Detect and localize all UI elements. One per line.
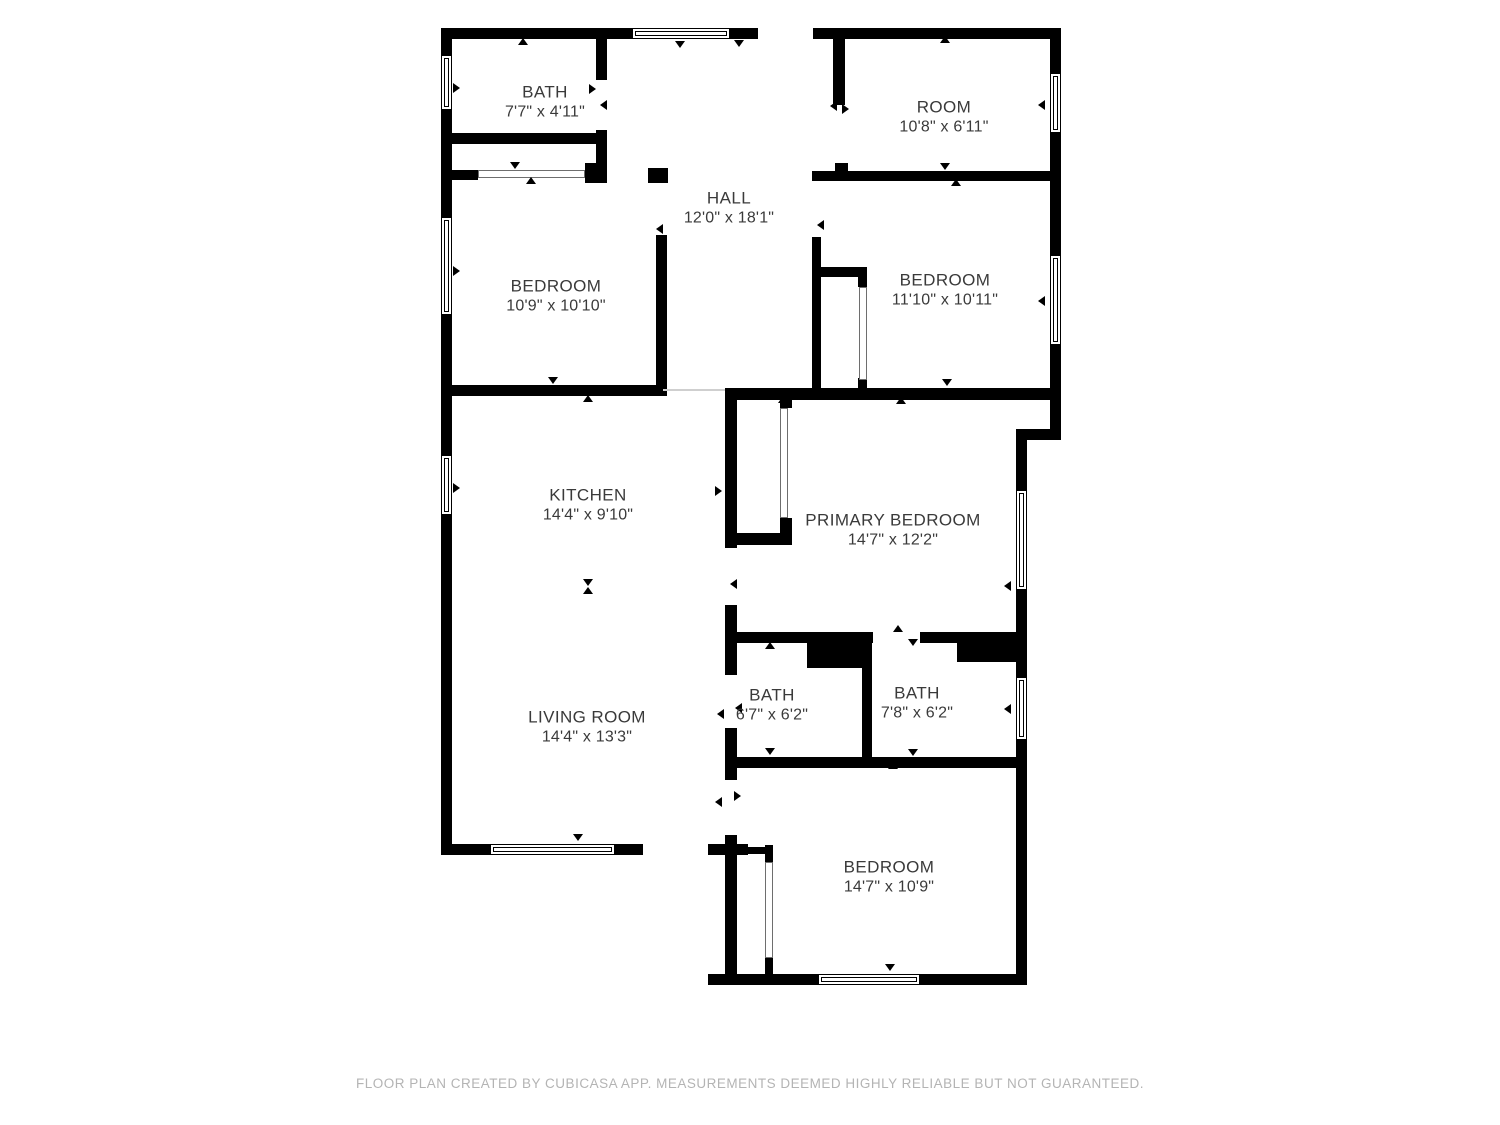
window	[490, 844, 615, 855]
window	[441, 455, 452, 515]
wall-segment	[441, 170, 478, 180]
door-marker-down-icon	[548, 377, 558, 384]
room-label: BEDROOM10'9" x 10'10"	[506, 277, 605, 316]
window-frame	[821, 977, 917, 982]
door-marker-left-icon	[1038, 296, 1045, 306]
sliding-door	[859, 287, 867, 380]
window-frame	[1053, 258, 1058, 342]
room-name: BEDROOM	[892, 271, 998, 291]
wall-segment	[807, 632, 870, 668]
room-dimensions: 14'7" x 10'9"	[844, 878, 935, 897]
door-marker-right-icon	[734, 791, 741, 801]
room-name: BATH	[881, 684, 953, 704]
door-marker-down-icon	[885, 964, 895, 971]
door-marker-left-icon	[730, 579, 737, 589]
door-marker-down-icon	[583, 579, 593, 586]
door-marker-up-icon	[888, 762, 898, 769]
sliding-door	[765, 862, 773, 958]
wall-segment	[1016, 590, 1027, 677]
room-name: LIVING ROOM	[528, 708, 646, 728]
room-dimensions: 7'8" x 6'2"	[881, 704, 953, 723]
door-marker-right-icon	[453, 483, 460, 493]
wall-segment	[441, 385, 663, 396]
room-name: BATH	[736, 686, 808, 706]
room-dimensions: 10'9" x 10'10"	[506, 297, 605, 316]
room-dimensions: 14'4" x 13'3"	[528, 728, 646, 747]
room-dimensions: 11'10" x 10'11"	[892, 291, 998, 310]
wall-segment	[737, 847, 767, 854]
room-name: BATH	[505, 83, 585, 103]
wall-segment	[725, 388, 737, 548]
door-marker-left-icon	[715, 797, 722, 807]
door-marker-up-icon	[518, 38, 528, 45]
wall-segment	[1016, 740, 1027, 974]
wall-segment	[725, 835, 737, 985]
wall-segment	[920, 974, 1027, 985]
door-marker-down-icon	[940, 163, 950, 170]
wall-segment	[835, 163, 848, 180]
window-frame	[1019, 493, 1024, 587]
wall-segment	[615, 844, 643, 855]
room-dimensions: 6'7" x 6'2"	[736, 706, 808, 725]
door-marker-right-icon	[589, 84, 596, 94]
door-marker-right-icon	[715, 486, 722, 496]
wall-segment	[737, 533, 792, 545]
room-label: BEDROOM14'7" x 10'9"	[844, 858, 935, 897]
door-marker-right-icon	[453, 266, 460, 276]
window-frame	[444, 458, 449, 512]
window	[818, 974, 920, 985]
wall-segment	[833, 28, 845, 105]
room-dimensions: 7'7" x 4'11"	[505, 103, 585, 122]
door-marker-right-icon	[453, 83, 460, 93]
wall-segment	[656, 235, 667, 396]
door-marker-up-icon	[951, 179, 961, 186]
window-frame	[444, 220, 449, 312]
wall-segment	[725, 388, 1061, 400]
room-label: BATH6'7" x 6'2"	[736, 686, 808, 725]
door-marker-down-icon	[908, 749, 918, 756]
room-name: BEDROOM	[506, 277, 605, 297]
window	[441, 55, 452, 110]
wall-segment	[441, 515, 452, 855]
door-marker-down-icon	[510, 162, 520, 169]
room-label: HALL12'0" x 18'1"	[684, 189, 774, 228]
window	[1016, 677, 1027, 740]
window	[632, 28, 730, 39]
window	[1016, 490, 1027, 590]
door-marker-up-icon	[893, 625, 903, 632]
window	[1050, 255, 1061, 345]
room-label: BATH7'7" x 4'11"	[505, 83, 585, 122]
wall-segment	[821, 267, 867, 277]
wall-segment	[1016, 440, 1027, 490]
room-name: BEDROOM	[844, 858, 935, 878]
floor-plan-canvas: BATH7'7" x 4'11"ROOM10'8" x 6'11"HALL12'…	[0, 0, 1500, 1125]
wall-segment	[441, 133, 607, 144]
room-label: BATH7'8" x 6'2"	[881, 684, 953, 723]
window-frame	[635, 31, 727, 36]
room-name: HALL	[684, 189, 774, 209]
door-marker-down-icon	[942, 379, 952, 386]
wall-segment	[1016, 429, 1061, 440]
door-marker-left-icon	[656, 224, 663, 234]
wall-segment	[441, 110, 452, 217]
door-marker-up-icon	[765, 642, 775, 649]
door-marker-up-icon	[526, 177, 536, 184]
window-frame	[493, 847, 612, 852]
door-marker-down-icon	[765, 748, 775, 755]
door-marker-up-icon	[778, 396, 788, 403]
wall-segment	[858, 277, 867, 287]
wall-segment	[730, 28, 758, 39]
room-name: KITCHEN	[543, 486, 633, 506]
footer-disclaimer: FLOOR PLAN CREATED BY CUBICASA APP. MEAS…	[0, 1076, 1500, 1091]
wall-segment	[920, 632, 957, 643]
door-marker-up-icon	[583, 395, 593, 402]
room-dimensions: 12'0" x 18'1"	[684, 209, 774, 228]
room-dimensions: 14'4" x 9'10"	[543, 506, 633, 525]
window	[1050, 73, 1061, 133]
wall-segment	[1050, 133, 1061, 255]
door-marker-up-icon	[896, 397, 906, 404]
wall-segment	[596, 28, 607, 80]
wall-segment	[813, 28, 1061, 39]
sliding-door	[780, 408, 788, 518]
window-frame	[444, 58, 449, 107]
room-dimensions: 10'8" x 6'11"	[899, 118, 988, 137]
door-marker-left-icon	[1004, 581, 1011, 591]
wall-segment	[441, 28, 452, 55]
door-marker-right-icon	[842, 104, 849, 114]
wall-segment	[648, 168, 668, 183]
window-frame	[1053, 76, 1058, 130]
door-marker-left-icon	[717, 709, 724, 719]
door-marker-up-icon	[940, 36, 950, 43]
room-name: PRIMARY BEDROOM	[805, 511, 980, 531]
wall-segment	[733, 757, 1017, 768]
door-marker-down-icon	[734, 40, 744, 47]
door-marker-left-icon	[817, 220, 824, 230]
room-label: BEDROOM11'10" x 10'11"	[892, 271, 998, 310]
wall-segment	[765, 958, 773, 974]
door-marker-left-icon	[600, 100, 607, 110]
room-label: KITCHEN14'4" x 9'10"	[543, 486, 633, 525]
wall-segment	[596, 130, 607, 183]
room-dimensions: 14'7" x 12'2"	[805, 531, 980, 550]
door-marker-down-icon	[573, 834, 583, 841]
door-marker-down-icon	[908, 639, 918, 646]
wall-segment	[812, 237, 821, 396]
window	[441, 217, 452, 315]
wall-segment	[725, 728, 737, 780]
door-marker-down-icon	[675, 41, 685, 48]
room-label: ROOM10'8" x 6'11"	[899, 98, 988, 137]
door-marker-left-icon	[1004, 704, 1011, 714]
wall-segment	[957, 632, 1017, 662]
room-label: LIVING ROOM14'4" x 13'3"	[528, 708, 646, 747]
wall-segment	[1050, 28, 1061, 73]
room-label: PRIMARY BEDROOM14'7" x 12'2"	[805, 511, 980, 550]
room-divider-line	[663, 389, 725, 391]
door-marker-left-icon	[830, 101, 837, 111]
door-marker-up-icon	[583, 587, 593, 594]
room-name: ROOM	[899, 98, 988, 118]
door-marker-left-icon	[1038, 100, 1045, 110]
wall-segment	[441, 844, 490, 855]
wall-segment	[812, 171, 1061, 181]
window-frame	[1019, 680, 1024, 737]
